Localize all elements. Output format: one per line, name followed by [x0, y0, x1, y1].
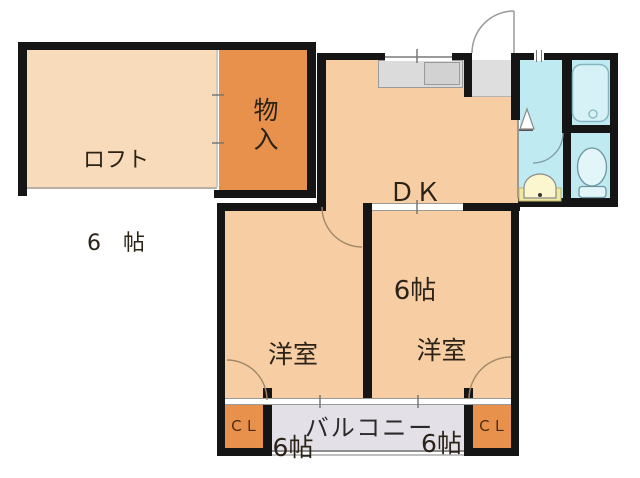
- balcony-label: バルコニー: [272, 413, 467, 443]
- wall: [317, 53, 326, 211]
- loft-label: ロフト 6 帖: [40, 92, 192, 312]
- toilet-room-floor: [571, 133, 610, 198]
- lavatory-floor: [519, 130, 564, 198]
- western-right-name: 洋室: [372, 335, 511, 366]
- wall: [217, 203, 322, 211]
- loft-size: 6 帖: [40, 230, 192, 258]
- lavatory-top-line: [519, 129, 533, 131]
- kitchen-sink-unit: [424, 62, 460, 85]
- wall: [214, 190, 316, 198]
- wall: [562, 57, 572, 128]
- wall: [563, 130, 571, 198]
- western-left-label: 洋室 6帖: [224, 276, 362, 478]
- lavatory-left-line: [517, 120, 519, 198]
- closet-left-label: ＣＬ: [225, 417, 263, 436]
- wall: [18, 42, 316, 50]
- kitchen-window-line: [385, 56, 452, 58]
- bathroom-floor: [572, 60, 610, 125]
- entry-door-icon: [472, 11, 514, 53]
- wall: [518, 198, 618, 207]
- loft-storage-divider: [216, 50, 218, 187]
- storage-label: 物入: [246, 86, 280, 166]
- wall: [511, 203, 519, 456]
- western-left-name: 洋室: [224, 339, 362, 370]
- wall: [18, 42, 27, 196]
- wall: [511, 53, 520, 120]
- dk-name: ＤＫ: [345, 177, 485, 210]
- western-right-label: 洋室 6帖: [372, 272, 511, 478]
- entry-hall-floor: [472, 60, 514, 97]
- wall: [307, 42, 316, 198]
- loft-name: ロフト: [40, 147, 192, 175]
- closet-right-label: ＣＬ: [473, 417, 511, 436]
- wall: [464, 53, 472, 97]
- floor-plan: ロフト 6 帖 物入 ＤＫ 6帖 洋室 6帖 洋室 6帖 ＣＬ ＣＬ バルコニー: [0, 0, 640, 478]
- washroom-floor: [520, 60, 562, 130]
